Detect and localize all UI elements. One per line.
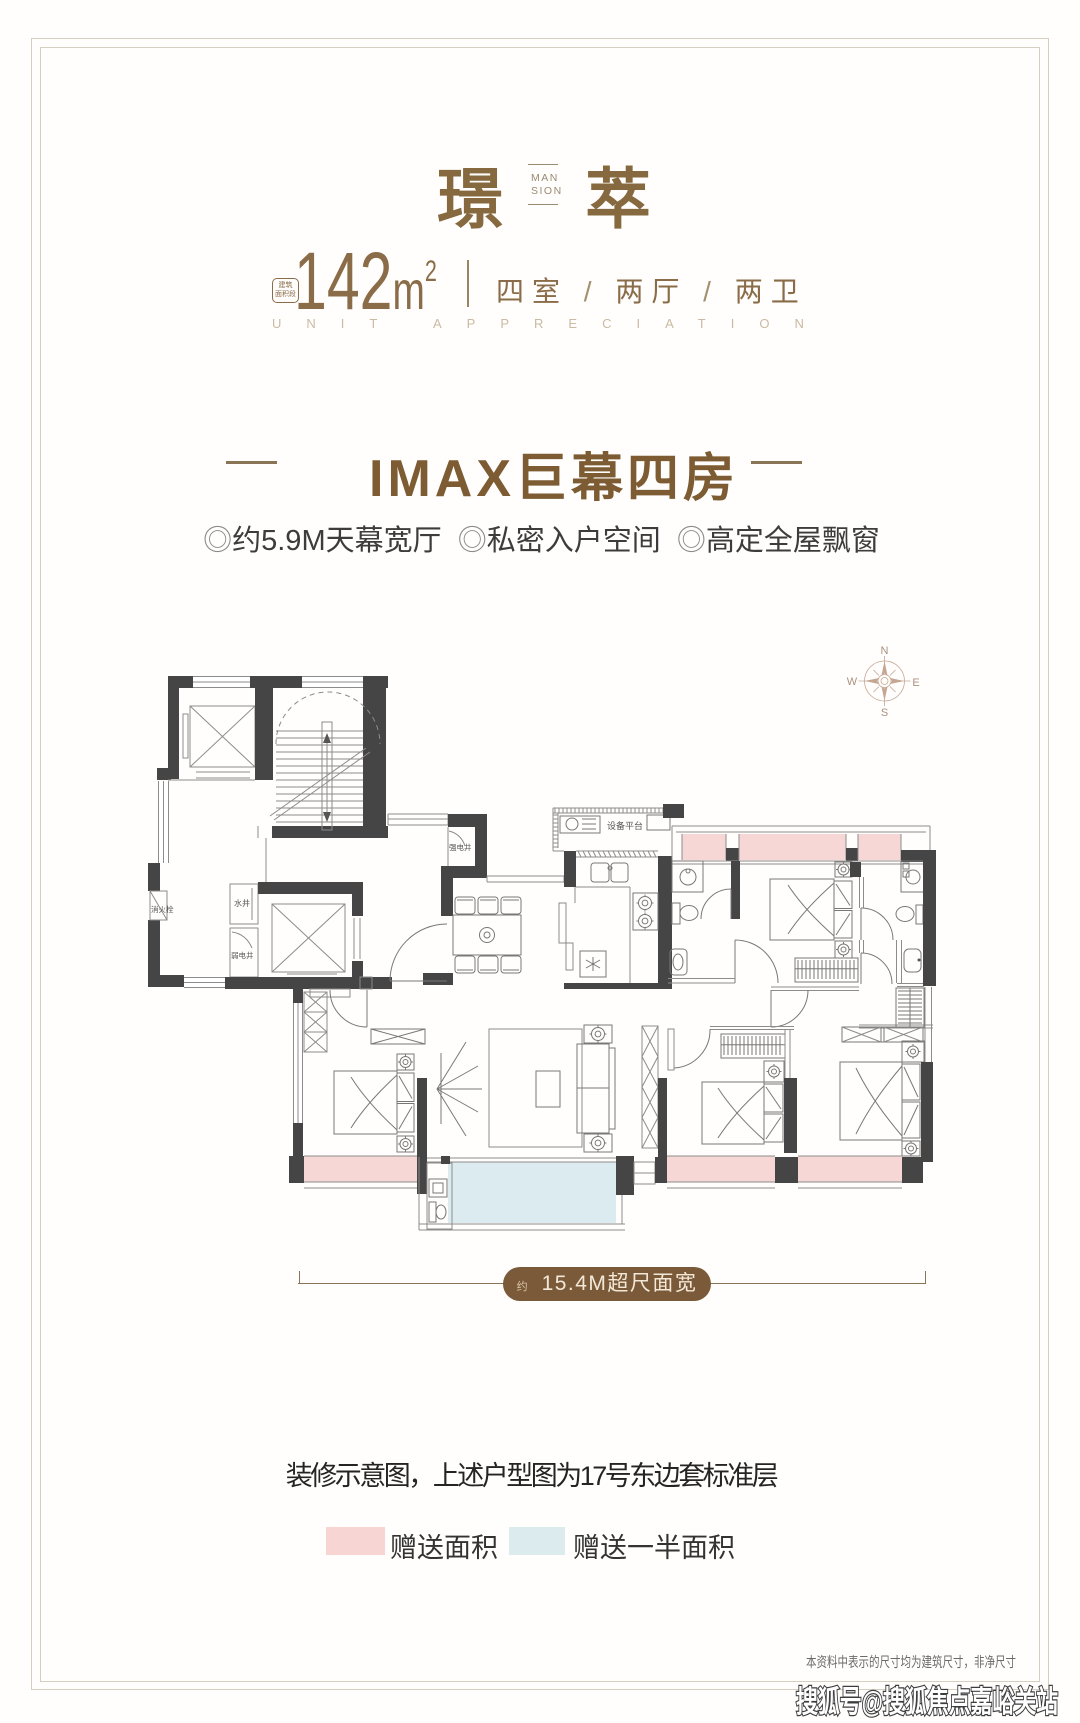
svg-text:强电井: 强电井 bbox=[449, 842, 472, 852]
svg-text:W: W bbox=[847, 676, 858, 688]
svg-text:搜狐号@搜狐焦点嘉峪关站: 搜狐号@搜狐焦点嘉峪关站 bbox=[796, 1685, 1058, 1719]
svg-text:N: N bbox=[881, 645, 889, 657]
svg-text:水井: 水井 bbox=[234, 898, 250, 908]
svg-text:S: S bbox=[881, 707, 888, 719]
svg-text:消火栓: 消火栓 bbox=[151, 904, 174, 914]
svg-text:弱电井: 弱电井 bbox=[231, 950, 254, 960]
svg-text:E: E bbox=[912, 677, 919, 689]
svg-text:设备平台: 设备平台 bbox=[607, 820, 643, 831]
